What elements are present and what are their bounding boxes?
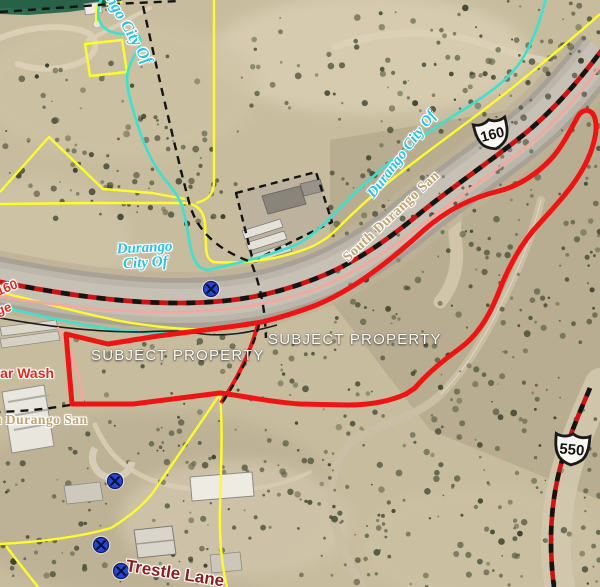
utility-marker-icon <box>106 472 123 489</box>
map-canvas[interactable]: 160 550 Durango City Of Durango City Of … <box>0 0 600 587</box>
utility-marker-icon <box>92 536 109 553</box>
utility-marker-icon <box>202 280 219 297</box>
us550-shield-number: 550 <box>559 440 585 459</box>
aerial-map-svg: 160 550 <box>0 0 600 587</box>
utility-marker-icon <box>112 562 129 579</box>
